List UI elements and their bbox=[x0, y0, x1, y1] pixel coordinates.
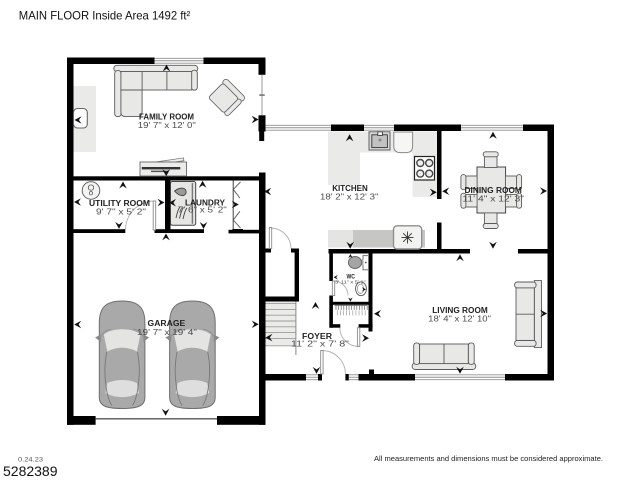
svg-text:All measurements and dimension: All measurements and dimensions must be … bbox=[374, 454, 603, 463]
svg-text:11' 4" x 12' 3": 11' 4" x 12' 3" bbox=[462, 194, 524, 203]
svg-text:9' 7" x 5' 2": 9' 7" x 5' 2" bbox=[96, 207, 146, 216]
svg-text:18' 4" x 12' 10": 18' 4" x 12' 10" bbox=[428, 315, 491, 324]
svg-text:KITCHEN: KITCHEN bbox=[332, 184, 368, 193]
svg-text:GARAGE: GARAGE bbox=[148, 319, 186, 328]
svg-text:WC: WC bbox=[346, 273, 355, 280]
svg-text:18' 2" x 12' 3": 18' 2" x 12' 3" bbox=[320, 193, 379, 202]
svg-text:3' 11" x 5' 1": 3' 11" x 5' 1" bbox=[335, 280, 366, 286]
svg-text:MAIN FLOOR Inside Area 1492 ft: MAIN FLOOR Inside Area 1492 ft² bbox=[19, 9, 191, 23]
svg-text:19' 7" x 19' 4": 19' 7" x 19' 4" bbox=[137, 328, 197, 337]
svg-text:5282389: 5282389 bbox=[3, 463, 58, 479]
svg-text:7' 6" x 5' 2": 7' 6" x 5' 2" bbox=[178, 205, 227, 214]
svg-text:19' 7" x 12' 0": 19' 7" x 12' 0" bbox=[138, 121, 196, 130]
svg-text:11' 2" x 7' 8": 11' 2" x 7' 8" bbox=[291, 339, 349, 348]
